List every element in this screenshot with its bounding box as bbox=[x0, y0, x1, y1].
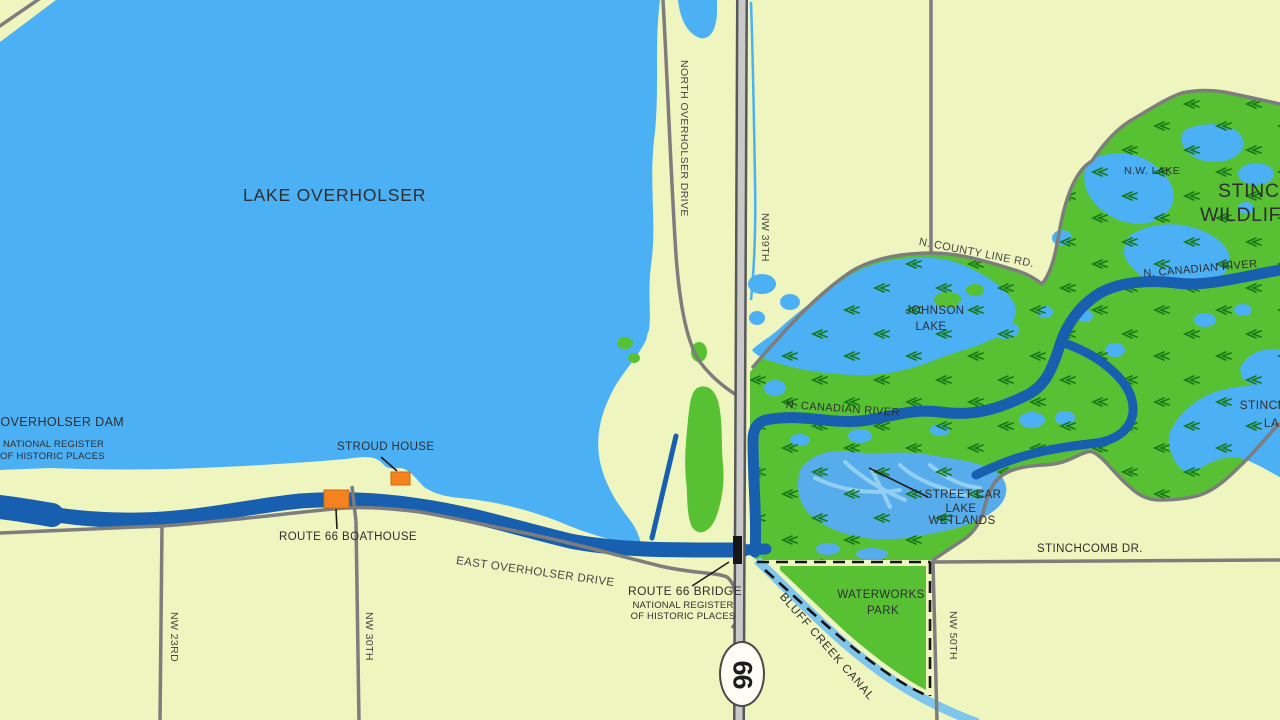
label-dam-historic: OF HISTORIC PLACES bbox=[0, 452, 105, 462]
label-johnson-lake-1: JOHNSON bbox=[880, 305, 990, 317]
stroud-house-marker bbox=[391, 472, 410, 485]
label-refuge-2: WILDLIFE REFUGE bbox=[1200, 205, 1280, 225]
label-nw-30th: NW 30TH bbox=[363, 612, 374, 661]
map-canvas: LAKE OVERHOLSER LAKE OVERHOLSER DAM NATI… bbox=[0, 0, 1280, 720]
label-bridge-register: NATIONAL REGISTER bbox=[628, 601, 738, 611]
label-bridge-historic: OF HISTORIC PLACES bbox=[628, 612, 738, 622]
label-nw-39th: NW 39TH bbox=[759, 213, 770, 262]
label-refuge-1: STINCHCOMB bbox=[1218, 181, 1280, 201]
label-overholser-dam: LAKE OVERHOLSER DAM bbox=[0, 416, 124, 429]
label-waterworks-1: WATERWORKS bbox=[826, 589, 936, 601]
label-route66-boathouse: ROUTE 66 BOATHOUSE bbox=[279, 531, 417, 543]
label-nw-lake: N.W. LAKE bbox=[1124, 166, 1180, 177]
label-dam-register: NATIONAL REGISTER bbox=[3, 440, 104, 450]
label-stinchcomb-dr: STINCHCOMB DR. bbox=[1037, 543, 1143, 555]
label-waterworks-2: PARK bbox=[828, 605, 938, 617]
peninsula-woods bbox=[685, 386, 723, 532]
lake-island bbox=[628, 353, 640, 363]
stinchcomb-drive-road bbox=[930, 560, 1280, 562]
lake-island bbox=[617, 337, 633, 349]
label-nw-50th: NW 50TH bbox=[947, 611, 958, 660]
route-66-boathouse-marker bbox=[324, 490, 349, 508]
label-street-car-1: STREET CAR bbox=[908, 489, 1018, 501]
route-66-shield-number: 66 bbox=[726, 660, 757, 688]
label-street-car-3: WETLANDS bbox=[907, 515, 1017, 527]
label-lake-overholser: LAKE OVERHOLSER bbox=[243, 186, 426, 204]
label-nw-23rd: NW 23RD bbox=[168, 612, 179, 662]
label-stinchcomb-lake-1: STINCHCOMB bbox=[1227, 399, 1280, 412]
route-66-bridge-marker bbox=[733, 536, 742, 564]
label-stinchcomb-lake-2: LAKE bbox=[1225, 417, 1280, 430]
label-north-overholser-drive: NORTH OVERHOLSER DRIVE bbox=[678, 60, 689, 217]
nw-23rd-road bbox=[160, 526, 162, 720]
route-66-highway-median bbox=[739, 0, 742, 720]
label-route66-bridge: ROUTE 66 BRIDGE bbox=[628, 585, 738, 598]
label-stroud-house: STROUD HOUSE bbox=[337, 441, 434, 453]
label-street-car-2: LAKE bbox=[906, 503, 1016, 515]
route-66-shield: 66 bbox=[719, 641, 765, 707]
label-johnson-lake-2: LAKE bbox=[876, 321, 986, 333]
